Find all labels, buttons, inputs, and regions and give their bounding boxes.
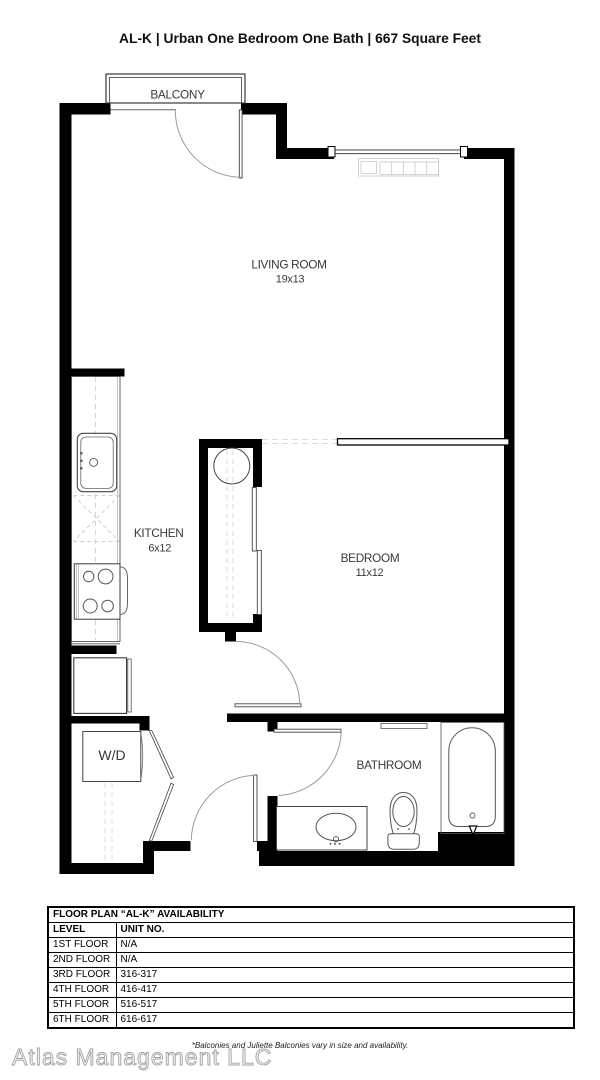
svg-text:W/D: W/D — [98, 747, 125, 763]
svg-text:BALCONY: BALCONY — [150, 88, 205, 102]
svg-text:KITCHEN: KITCHEN — [134, 526, 184, 540]
svg-text:19x13: 19x13 — [276, 273, 305, 285]
svg-text:LIVING ROOM: LIVING ROOM — [251, 257, 326, 271]
svg-text:6x12: 6x12 — [148, 543, 171, 555]
svg-text:BEDROOM: BEDROOM — [341, 551, 400, 565]
svg-text:BATHROOM: BATHROOM — [357, 758, 422, 772]
svg-text:11x12: 11x12 — [356, 567, 384, 579]
